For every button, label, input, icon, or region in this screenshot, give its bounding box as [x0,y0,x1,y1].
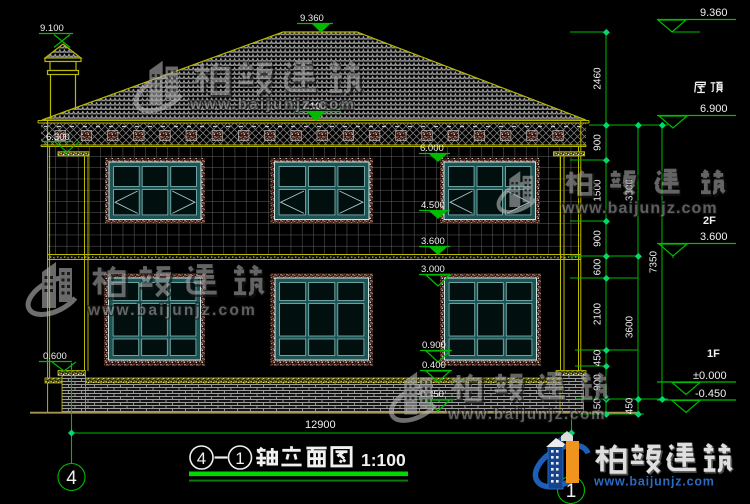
svg-text:www.baijunjz.com: www.baijunjz.com [447,406,606,423]
svg-text:±0.000: ±0.000 [693,370,727,382]
svg-text:www.baijunjz.com: www.baijunjz.com [87,302,257,319]
svg-text:4: 4 [197,449,206,468]
svg-text:1F: 1F [707,348,720,360]
svg-text:1:100: 1:100 [361,450,406,470]
svg-text:0.900: 0.900 [422,340,446,351]
svg-text:www.baijunjz.com: www.baijunjz.com [561,200,718,217]
svg-text:-0.450: -0.450 [695,388,726,400]
svg-text:0.400: 0.400 [422,360,446,371]
svg-text:3.000: 3.000 [421,264,445,275]
svg-text:3.600: 3.600 [700,231,728,243]
svg-text:900: 900 [593,134,604,151]
svg-text:600: 600 [593,258,604,275]
svg-text:6.000: 6.000 [420,143,444,154]
svg-text:www.baijunjz.com: www.baijunjz.com [189,96,356,113]
svg-text:450: 450 [593,349,604,366]
svg-text:0.600: 0.600 [43,351,67,362]
svg-text:9.360: 9.360 [300,13,324,24]
svg-text:7350: 7350 [649,250,660,273]
svg-text:www.baijunjz.com: www.baijunjz.com [593,475,715,489]
svg-text:3.600: 3.600 [421,236,445,247]
svg-text:1: 1 [235,449,244,468]
svg-text:4.500: 4.500 [421,200,445,211]
svg-text:900: 900 [593,230,604,247]
svg-text:9.100: 9.100 [40,23,64,34]
svg-text:2100: 2100 [593,302,604,325]
svg-text:3600: 3600 [625,315,636,338]
svg-text:12900: 12900 [305,419,336,431]
svg-text:450: 450 [625,397,636,414]
svg-text:9.360: 9.360 [700,7,728,19]
svg-text:4: 4 [66,468,77,489]
svg-text:6.900: 6.900 [700,103,728,115]
svg-text:2460: 2460 [593,67,604,90]
